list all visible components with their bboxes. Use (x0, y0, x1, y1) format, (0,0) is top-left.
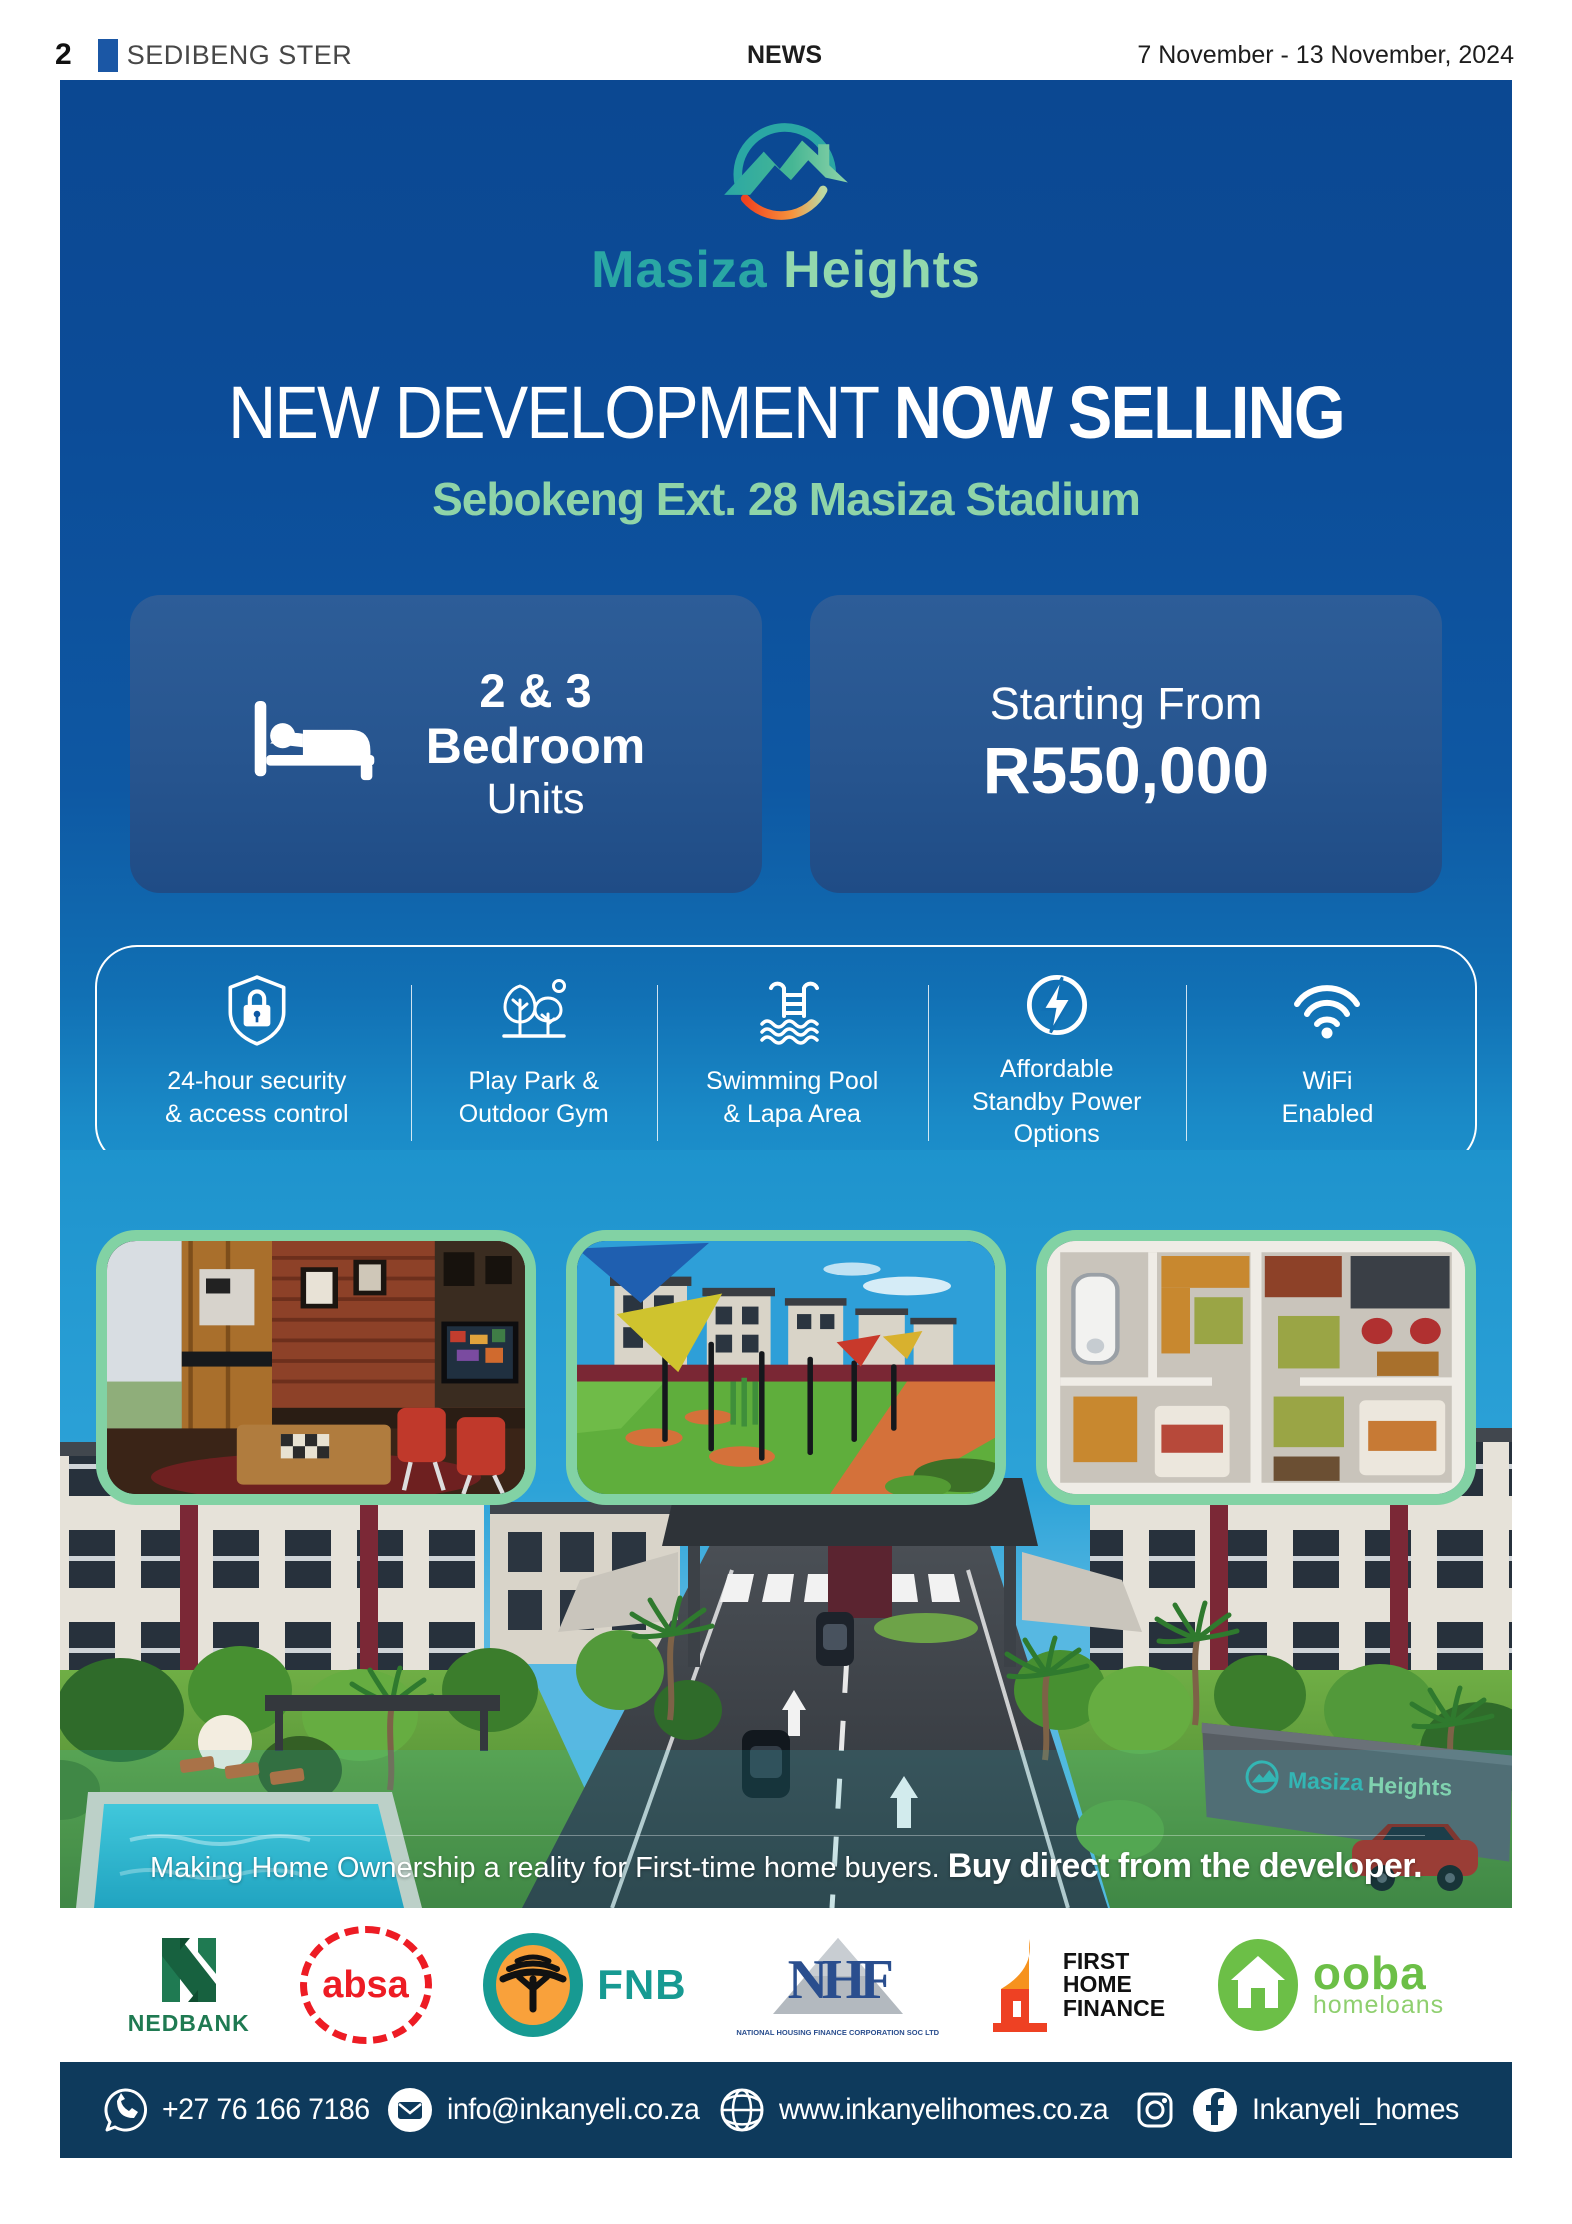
nhf-caption: NATIONAL HOUSING FINANCE CORPORATION SOC… (736, 2028, 939, 2037)
price-value: R550,000 (983, 731, 1269, 810)
date-range: 7 November - 13 November, 2024 (1137, 41, 1514, 70)
feature-security: 24-hour security & access control (103, 971, 411, 1149)
location-line: Sebokeng Ext. 28 Masiza Stadium (60, 472, 1512, 526)
brand-name-primary: Masiza (591, 241, 768, 299)
brand-name-secondary: Heights (783, 241, 981, 299)
feature-security-label: 24-hour security & access control (165, 1065, 348, 1130)
ooba-house-icon (1215, 1936, 1301, 2034)
instagram-icon (1132, 2087, 1178, 2133)
price-card: Starting From R550,000 (810, 595, 1442, 893)
contact-social: Inkanyeli_homes (1132, 2087, 1470, 2133)
brand-name: Masiza Heights (60, 240, 1512, 300)
newspaper-page: 2 SEDIBENG STER NEWS 7 November - 13 Nov… (0, 0, 1572, 2224)
masthead-title: SEDIBENG STER (127, 40, 353, 71)
page-header: 2 SEDIBENG STER NEWS 7 November - 13 Nov… (55, 38, 1514, 72)
advertisement: Masiza Heights NEW DEVELOPMENT NOW SELLI… (60, 80, 1512, 2158)
info-cards: 2 & 3 Bedroom Units Starting From R550,0… (130, 595, 1442, 893)
masiza-heights-logo-icon (711, 96, 861, 237)
feature-play-park-label: Play Park & Outdoor Gym (459, 1065, 609, 1130)
tagline: Making Home Ownership a reality for Firs… (60, 1847, 1512, 1886)
pool-ladder-icon (756, 971, 828, 1051)
units-card: 2 & 3 Bedroom Units (130, 595, 762, 893)
nedbank-label: NEDBANK (128, 2010, 250, 2037)
security-shield-lock-icon (224, 971, 290, 1051)
development-render: Masiza Heights (60, 1150, 1512, 1908)
nedbank-logo: NEDBANK (128, 1934, 250, 2037)
ooba-label-group: ooba homeloans (1313, 1953, 1444, 2017)
headline-bold: NOW SELLING (894, 371, 1344, 454)
wifi-icon (1289, 971, 1365, 1051)
contact-email: info@inkanyeli.co.za (387, 2087, 713, 2133)
price-label: Starting From (990, 677, 1263, 731)
feature-wifi-label: WiFi Enabled (1282, 1065, 1374, 1130)
contact-phone: +27 76 166 7186 (102, 2087, 381, 2133)
play-park-render-photo (566, 1230, 1006, 1505)
tagline-bold: Buy direct from the developer. (948, 1847, 1422, 1885)
page-number: 2 (55, 38, 72, 72)
absa-label: absa (322, 1964, 409, 2007)
absa-logo: absa (300, 1926, 432, 2044)
contact-bar: +27 76 166 7186 info@inkanyeli.co.za www… (60, 2062, 1512, 2158)
feature-power: Affordable Standby Power Options (928, 971, 1186, 1149)
tagline-regular: Making Home Ownership a reality for Firs… (150, 1852, 948, 1884)
masthead-left: 2 SEDIBENG STER (55, 38, 352, 72)
features-bar: 24-hour security & access control (95, 945, 1477, 1167)
facebook-icon (1192, 2087, 1238, 2133)
absa-oval-icon: absa (300, 1926, 432, 2044)
bed-icon (247, 694, 382, 794)
headline: NEW DEVELOPMENT NOW SELLING (133, 370, 1440, 455)
standby-power-icon (1023, 971, 1091, 1039)
nedbank-icon (152, 1934, 226, 2006)
ooba-sub-label: homeloans (1313, 1994, 1444, 2017)
email-icon (387, 2087, 433, 2133)
feature-power-label: Affordable Standby Power Options (972, 1053, 1142, 1151)
globe-icon (719, 2087, 765, 2133)
section-label: NEWS (747, 41, 822, 70)
units-line-2: Bedroom (426, 718, 645, 776)
first-home-finance-icon (989, 1937, 1051, 2033)
gallery (96, 1230, 1476, 1505)
ooba-label: ooba (1313, 1953, 1444, 1994)
masthead-marker (98, 39, 118, 72)
units-line-3: Units (426, 775, 645, 824)
units-card-text: 2 & 3 Bedroom Units (426, 664, 645, 825)
feature-pool-label: Swimming Pool & Lapa Area (706, 1065, 878, 1130)
nhf-logo: NHF NATIONAL HOUSING FINANCE CORPORATION… (736, 1934, 939, 2037)
fnb-logo: FNB (481, 1931, 686, 2039)
feature-pool: Swimming Pool & Lapa Area (657, 971, 928, 1149)
tagline-rule (147, 1835, 1425, 1836)
contact-website: www.inkanyelihomes.co.za (719, 2087, 1126, 2133)
first-home-finance-logo: FIRST HOME FINANCE (989, 1937, 1165, 2033)
whatsapp-icon (102, 2087, 148, 2133)
feature-play-park: Play Park & Outdoor Gym (411, 971, 657, 1149)
partner-logos-strip: NEDBANK absa (60, 1908, 1512, 2062)
fnb-label: FNB (597, 1961, 686, 2009)
nhf-letters: NHF (788, 1948, 888, 2012)
interior-kitchen-living-photo (96, 1230, 536, 1505)
apartment-floorplan-top-view-photo (1036, 1230, 1476, 1505)
ooba-logo: ooba homeloans (1215, 1936, 1444, 2034)
first-home-finance-label: FIRST HOME FINANCE (1063, 1950, 1165, 2020)
play-park-trees-icon (496, 971, 572, 1051)
fnb-icon (481, 1931, 585, 2039)
headline-regular: NEW DEVELOPMENT (228, 371, 894, 454)
feature-wifi: WiFi Enabled (1186, 971, 1469, 1149)
units-line-1: 2 & 3 (426, 664, 645, 718)
